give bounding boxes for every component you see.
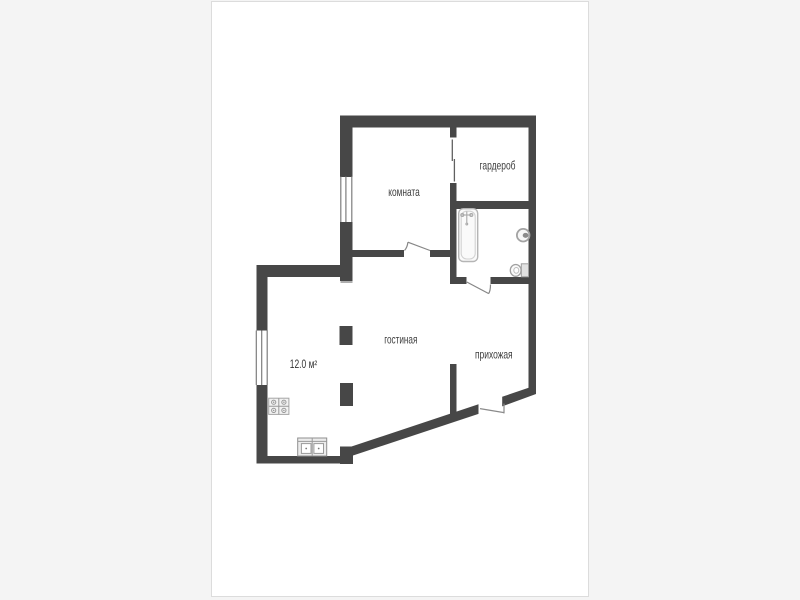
svg-text:гостиная: гостиная	[384, 332, 417, 346]
svg-text:12.0 м²: 12.0 м²	[290, 359, 318, 371]
svg-text:прихожая: прихожая	[475, 347, 513, 361]
svg-text:комната: комната	[388, 185, 420, 199]
svg-text:гардероб: гардероб	[480, 158, 516, 172]
